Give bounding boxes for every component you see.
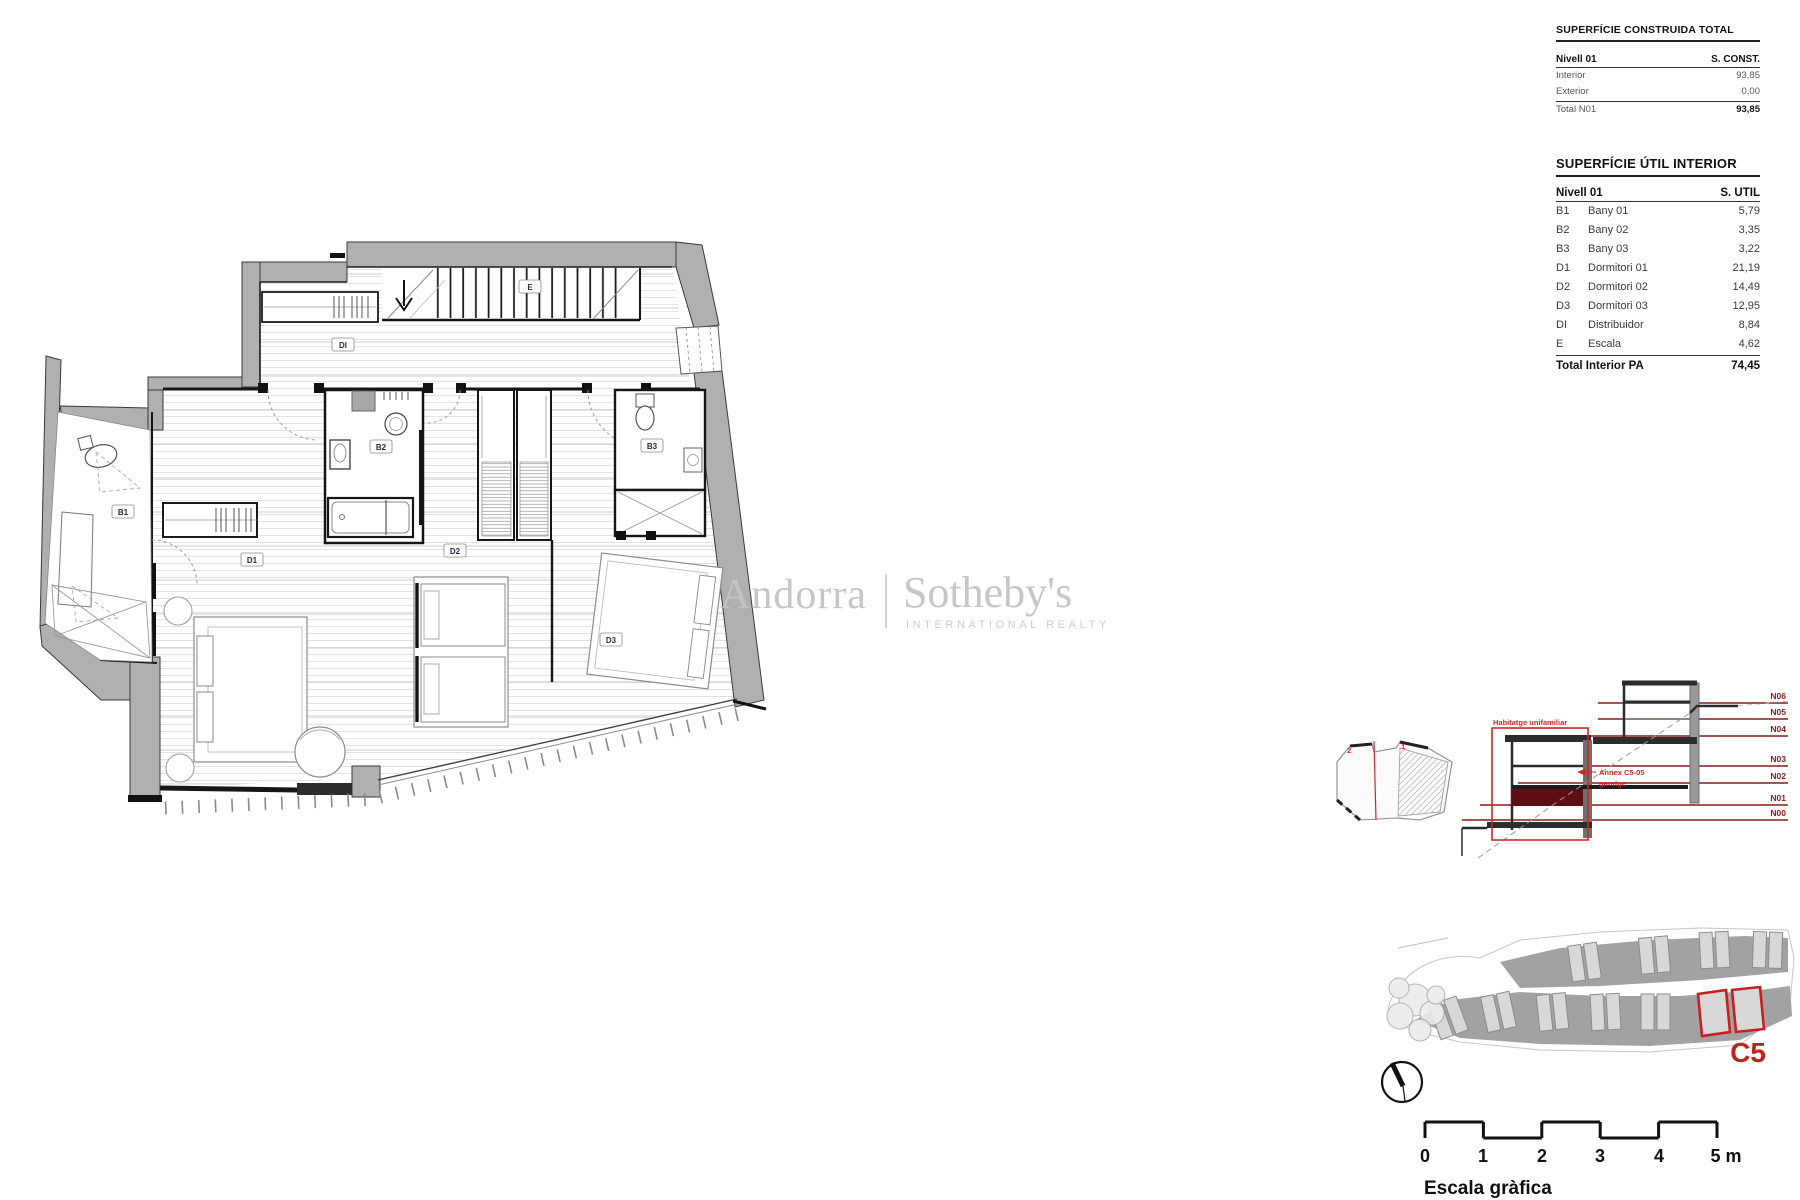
svg-text:1: 1: [1478, 1146, 1488, 1166]
room-label-d2: D2: [444, 544, 466, 557]
svg-text:Annex C5-05: Annex C5-05: [1599, 768, 1644, 777]
table-header: Nivell 01 S. CONST.: [1556, 54, 1760, 68]
svg-text:E: E: [527, 283, 533, 292]
table-row: Exterior 0,00: [1556, 84, 1760, 100]
row-name: Dormitori 01: [1588, 259, 1732, 278]
scale-bar-segments: [1425, 1122, 1717, 1138]
row-value: 21,19: [1732, 259, 1760, 278]
railing-ticks: [165, 799, 378, 808]
staircase: [382, 268, 640, 320]
row-code: B1: [1556, 202, 1588, 221]
svg-text:4: 4: [1654, 1146, 1664, 1166]
floor-plan: E DI B1 B2 B3 D1: [40, 242, 766, 808]
svg-text:N04: N04: [1770, 724, 1786, 734]
row-value: 14,49: [1732, 278, 1760, 297]
room-label-di: DI: [332, 338, 354, 351]
header-sconst: S. CONST.: [1711, 54, 1760, 65]
wall-top: [347, 242, 676, 267]
scale-bar: 0 1 2 3 4 5 m Escala gràfica: [1420, 1122, 1742, 1199]
row-code: D2: [1556, 278, 1588, 297]
row-name: Bany 01: [1588, 202, 1739, 221]
bedside-table: [166, 754, 194, 782]
washbasin: [684, 448, 702, 472]
total-value: 74,45: [1731, 356, 1760, 376]
svg-text:N02: N02: [1770, 771, 1786, 781]
pillow: [424, 664, 439, 714]
wall-right-upper: [676, 242, 719, 328]
site-path: [1398, 938, 1448, 948]
svg-text:2: 2: [1537, 1146, 1547, 1166]
total-label: Total Interior PA: [1556, 356, 1644, 376]
row-code: B3: [1556, 240, 1588, 259]
window-right: [676, 326, 722, 374]
row-value: 3,22: [1739, 240, 1760, 259]
svg-text:N00: N00: [1770, 808, 1786, 818]
room-label-e: E: [519, 280, 541, 293]
table-header: Nivell 01 S. UTIL: [1556, 187, 1760, 202]
bathroom-b1: [45, 412, 152, 662]
floorplan-page: { "watermark": { "brand": "Andorra", "na…: [0, 0, 1800, 1200]
cut-mark: 1: [1401, 742, 1405, 751]
total-label: Total N01: [1556, 102, 1596, 118]
row-name: Distribuidor: [1588, 316, 1739, 335]
svg-text:D3: D3: [606, 636, 617, 645]
bedside-table: [164, 597, 192, 625]
svg-text:N01: N01: [1770, 793, 1786, 803]
svg-text:D2: D2: [450, 547, 461, 556]
svg-text:N05: N05: [1770, 707, 1786, 717]
header-level: Nivell 01: [1556, 187, 1603, 199]
row-value: 0,00: [1742, 84, 1761, 100]
site-plan: C5: [1387, 928, 1794, 1068]
wall-bottom-left-post: [130, 657, 160, 800]
wall-step-vertical: [148, 390, 163, 430]
cut-mark: 2: [1347, 746, 1351, 755]
section-subject-block: [1462, 735, 1688, 856]
tree: [1387, 978, 1445, 1041]
header-sutil: S. UTIL: [1720, 187, 1760, 199]
table-superficie-construida: SUPERFÍCIE CONSTRUIDA TOTAL Nivell 01 S.…: [1556, 24, 1760, 118]
row-name: Escala: [1588, 335, 1739, 354]
washbasin: [385, 413, 407, 435]
section-key-plan: 2 1: [1337, 741, 1452, 820]
armchair: [295, 727, 345, 777]
row-code: E: [1556, 335, 1588, 354]
wardrobe-columns: [478, 390, 551, 540]
svg-text:3: 3: [1595, 1146, 1605, 1166]
table-row: B3 Bany 03 3,22: [1556, 240, 1760, 259]
row-label: Interior: [1556, 68, 1736, 84]
wall-cap: [128, 795, 162, 802]
shelf: [352, 391, 375, 411]
room-label-b2: B2: [370, 440, 392, 453]
row-name: Dormitori 02: [1588, 278, 1732, 297]
scale-bar-caption: Escala gràfica: [1424, 1178, 1552, 1199]
table-row: E Escala 4,62: [1556, 335, 1760, 354]
section-diagram: 2 1 N06 N05 N04 N03 N02 N01 N00: [1337, 681, 1788, 858]
scale-bar-numbers: 0 1 2 3 4 5 m: [1420, 1146, 1742, 1166]
pillow: [197, 636, 213, 686]
row-value: 3,35: [1739, 221, 1760, 240]
pillow: [197, 692, 213, 742]
pillow: [424, 591, 439, 639]
svg-text:N06: N06: [1770, 691, 1786, 701]
room-label-b3: B3: [641, 439, 663, 452]
table-row: D3 Dormitori 03 12,95: [1556, 297, 1760, 316]
table-row: B1 Bany 01 5,79: [1556, 202, 1760, 221]
table-row: Interior 93,85: [1556, 68, 1760, 84]
section-house-label: Habitatge unifamiliar: [1493, 718, 1567, 727]
svg-text:garatge: garatge: [1599, 779, 1626, 788]
toilet: [636, 406, 654, 430]
table-row: DI Distribuidor 8,84: [1556, 316, 1760, 335]
wall-left-vertical: [242, 262, 260, 387]
row-name: Bany 03: [1588, 240, 1739, 259]
bedroom-d2: [414, 577, 508, 727]
row-code: DI: [1556, 316, 1588, 335]
header-level: Nivell 01: [1556, 54, 1597, 65]
table-row: B2 Bany 02 3,35: [1556, 221, 1760, 240]
room-label-d3: D3: [600, 633, 622, 646]
row-value: 8,84: [1739, 316, 1760, 335]
row-code: D1: [1556, 259, 1588, 278]
site-unit-label: C5: [1730, 1037, 1766, 1068]
table-total-row: Total Interior PA 74,45: [1556, 355, 1760, 376]
terrace-post: [352, 766, 380, 797]
wall-tick: [330, 253, 345, 258]
table-row: D2 Dormitori 02 14,49: [1556, 278, 1760, 297]
svg-text:5 m: 5 m: [1710, 1146, 1741, 1166]
svg-text:0: 0: [1420, 1146, 1430, 1166]
svg-text:N03: N03: [1770, 754, 1786, 764]
sliding-door: [297, 783, 352, 795]
row-value: 4,62: [1739, 335, 1760, 354]
room-label-d1: D1: [241, 553, 263, 566]
sink-counter: [58, 512, 93, 607]
table-total-row: Total N01 93,85: [1556, 101, 1760, 118]
room-label-b1: B1: [112, 505, 134, 518]
row-value: 12,95: [1732, 297, 1760, 316]
bathroom-b3: [615, 390, 705, 540]
row-value: 93,85: [1736, 68, 1760, 84]
table-title: SUPERFÍCIE CONSTRUIDA TOTAL: [1556, 24, 1760, 42]
total-value: 93,85: [1736, 102, 1760, 118]
drawing-canvas: E DI B1 B2 B3 D1: [0, 0, 1800, 1200]
level-labels: N06 N05 N04 N03 N02 N01 N00: [1770, 691, 1786, 818]
bedroom-d3: [587, 553, 723, 689]
table-title: SUPERFÍCIE ÚTIL INTERIOR: [1556, 156, 1760, 177]
svg-text:DI: DI: [339, 341, 347, 350]
svg-text:B2: B2: [376, 443, 387, 452]
row-label: Exterior: [1556, 84, 1742, 100]
row-value: 5,79: [1739, 202, 1760, 221]
table-superficie-util: SUPERFÍCIE ÚTIL INTERIOR Nivell 01 S. UT…: [1556, 156, 1760, 376]
row-code: D3: [1556, 297, 1588, 316]
row-code: B2: [1556, 221, 1588, 240]
bathroom-b2: [325, 390, 423, 543]
svg-text:B3: B3: [647, 442, 658, 451]
compass: [1382, 1062, 1422, 1102]
svg-text:B1: B1: [118, 508, 129, 517]
bathtub: [328, 498, 413, 537]
row-name: Bany 02: [1588, 221, 1739, 240]
row-name: Dormitori 03: [1588, 297, 1732, 316]
table-row: D1 Dormitori 01 21,19: [1556, 259, 1760, 278]
svg-text:D1: D1: [247, 556, 258, 565]
wardrobe-top: [262, 292, 378, 322]
